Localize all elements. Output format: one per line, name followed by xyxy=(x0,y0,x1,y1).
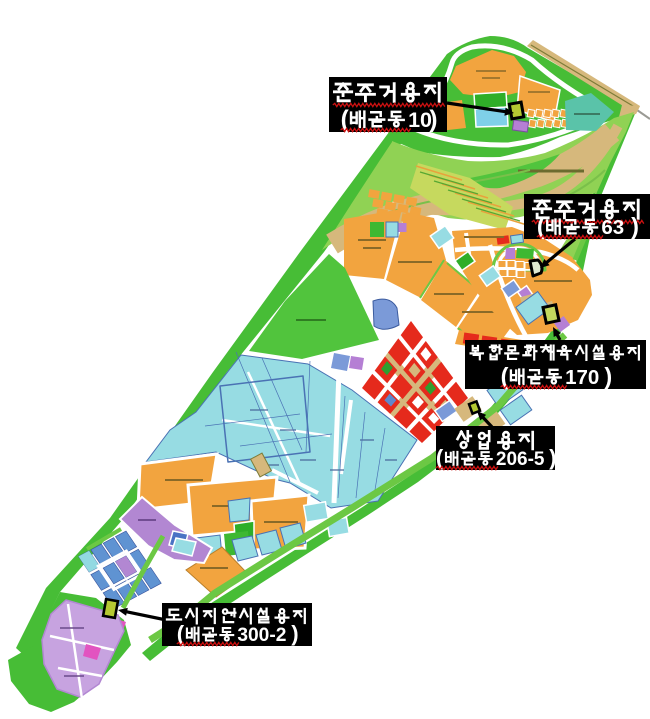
svg-text:): ) xyxy=(549,445,556,470)
svg-text:206-5: 206-5 xyxy=(496,449,545,470)
svg-text:(: ( xyxy=(501,363,509,389)
svg-text:): ) xyxy=(429,106,437,133)
svg-text:(: ( xyxy=(537,213,545,239)
svg-text:170: 170 xyxy=(565,366,599,389)
svg-text:63: 63 xyxy=(601,216,624,239)
svg-text:300-2: 300-2 xyxy=(237,625,286,646)
svg-text:): ) xyxy=(631,213,639,239)
svg-text:): ) xyxy=(604,363,612,389)
svg-text:): ) xyxy=(291,621,298,646)
